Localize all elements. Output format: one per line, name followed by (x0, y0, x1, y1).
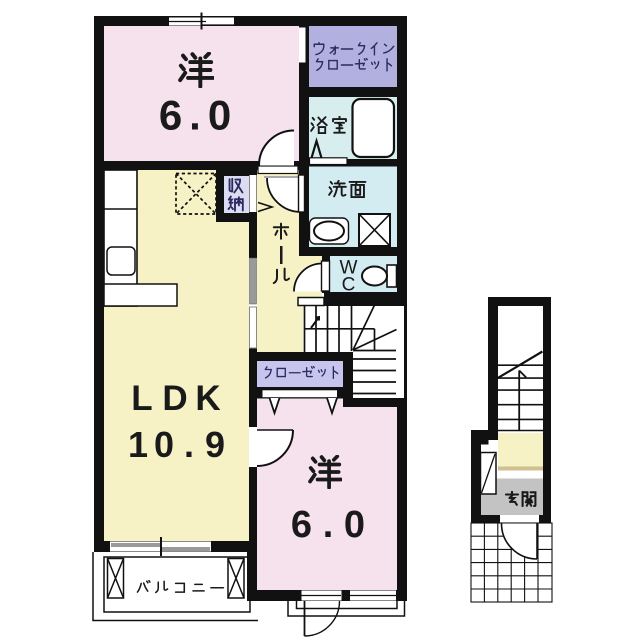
svg-text:0: 0 (208, 92, 231, 139)
svg-text:.: . (189, 92, 201, 139)
svg-text:L: L (131, 379, 152, 418)
svg-text:6: 6 (159, 92, 182, 139)
svg-text:0: 0 (154, 424, 174, 465)
svg-text:D: D (162, 379, 187, 418)
svg-text:9: 9 (205, 424, 225, 465)
svg-text:.: . (323, 504, 334, 546)
svg-text:C: C (342, 275, 356, 296)
svg-text:1: 1 (128, 424, 148, 465)
svg-text:0: 0 (344, 504, 365, 546)
svg-text:K: K (195, 379, 220, 418)
svg-text:6: 6 (291, 504, 312, 546)
svg-text:.: . (184, 424, 194, 465)
